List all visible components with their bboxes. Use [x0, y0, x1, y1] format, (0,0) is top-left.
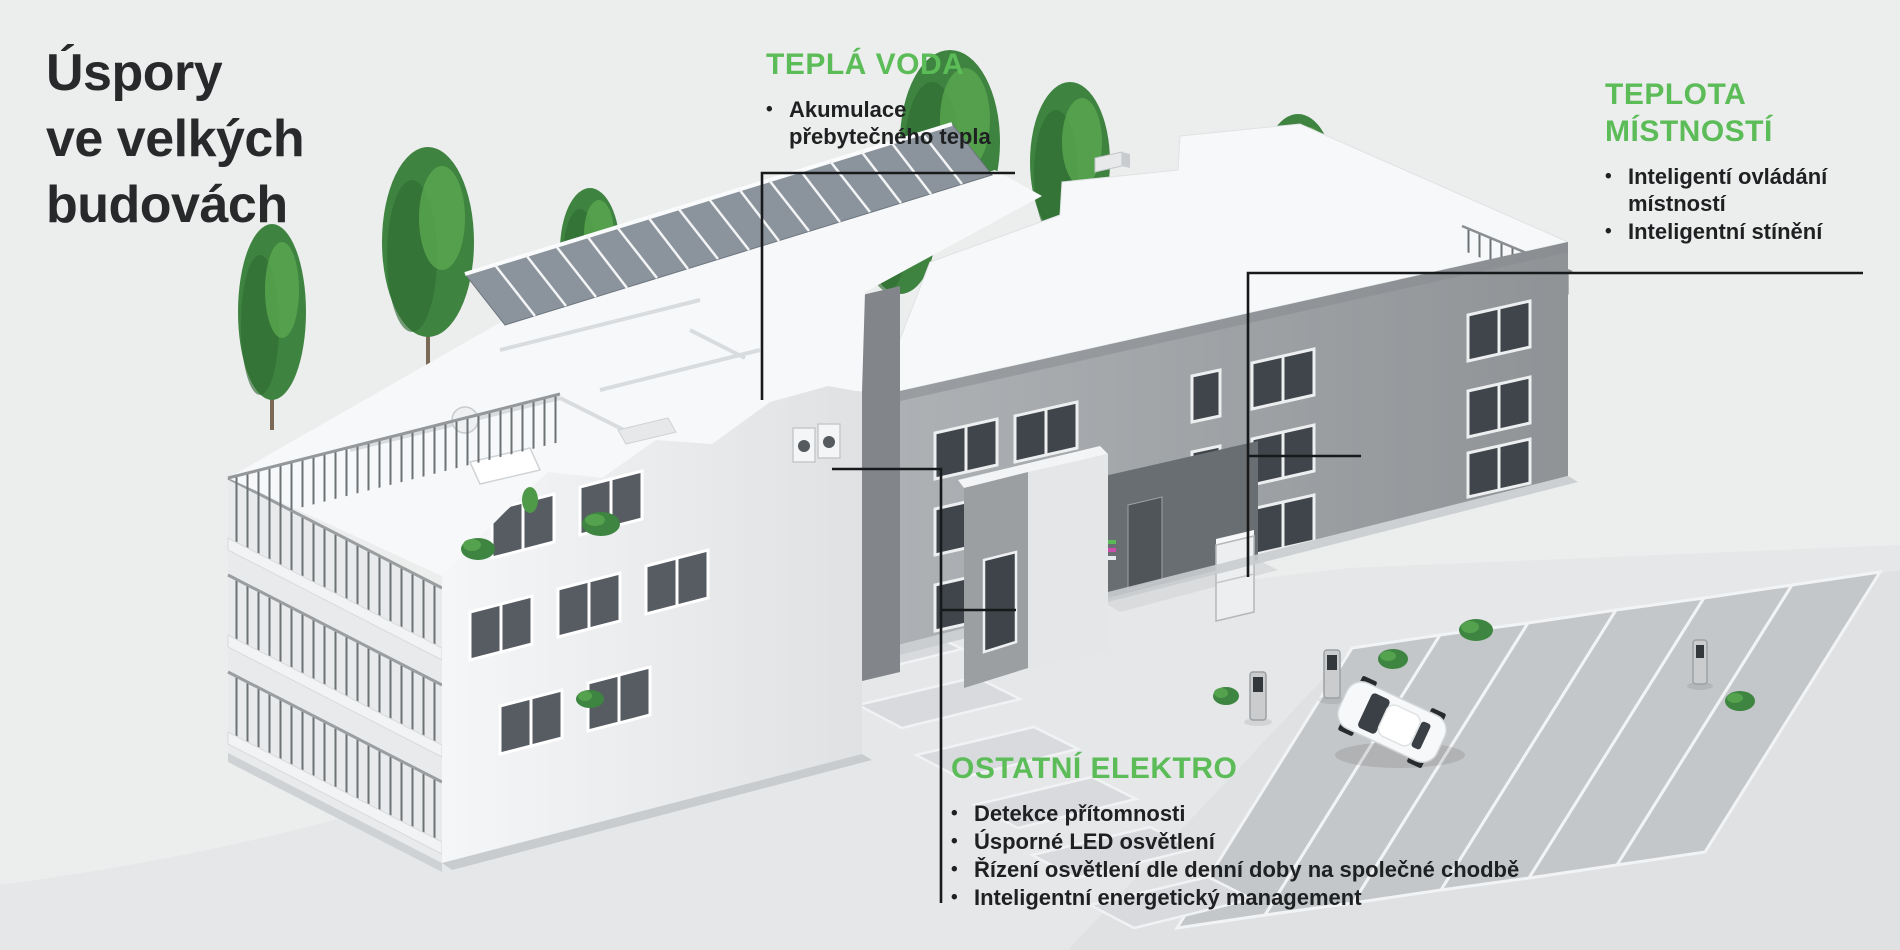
callout-teplota-mistnosti: TEPLOTA MÍSTNOSTÍ • Inteligentí ovládání…: [1605, 76, 1885, 246]
title-line: Úspory: [46, 40, 304, 106]
bullet-text: Detekce přítomnosti: [974, 800, 1186, 827]
tree: [238, 224, 306, 430]
bullet-list: • Detekce přítomnosti • Úsporné LED osvě…: [951, 800, 1671, 911]
bullet-dot: •: [951, 856, 974, 883]
bullet-list: • Akumulace přebytečného tepla: [766, 96, 1026, 150]
title-line: budovách: [46, 172, 304, 238]
bullet-dot: •: [951, 800, 974, 827]
callout-ostatni-elektro: OSTATNÍ ELEKTRO • Detekce přítomnosti • …: [951, 750, 1671, 912]
bullet-dot: •: [951, 828, 974, 855]
entrance-bay: [958, 446, 1108, 688]
bullet-dot: •: [951, 884, 974, 911]
bullet-dot: •: [1605, 218, 1628, 245]
callout-heading: TEPLOTA MÍSTNOSTÍ: [1605, 76, 1815, 150]
porch-door: [1128, 497, 1162, 590]
page-title: Úspory ve velkých budovách: [46, 40, 304, 238]
callout-tepla-voda: TEPLÁ VODA • Akumulace přebytečného tepl…: [766, 46, 1026, 151]
bullet-item: • Inteligentní energetický management: [951, 884, 1671, 911]
bullet-item: • Akumulace přebytečného tepla: [766, 96, 1026, 150]
callout-heading: TEPLÁ VODA: [766, 46, 1026, 83]
gap-shadow: [858, 286, 900, 682]
bullet-list: • Inteligentí ovládání místností • Intel…: [1605, 163, 1885, 245]
title-line: ve velkých: [46, 106, 304, 172]
entrance-door: [984, 552, 1016, 652]
bullet-item: • Inteligentní stínění: [1605, 218, 1885, 245]
bullet-text: Řízení osvětlení dle denní doby na spole…: [974, 856, 1519, 883]
bullet-item: • Inteligentí ovládání místností: [1605, 163, 1885, 217]
bullet-text: Akumulace přebytečného tepla: [789, 96, 1026, 150]
bullet-text: Inteligentní stínění: [1628, 218, 1885, 245]
callout-heading: OSTATNÍ ELEKTRO: [951, 750, 1671, 787]
bullet-text: Úsporné LED osvětlení: [974, 828, 1215, 855]
infographic-canvas: Úspory ve velkých budovách TEPLÁ VODA • …: [0, 0, 1900, 950]
bullet-dot: •: [766, 96, 789, 123]
tree: [382, 147, 474, 370]
terrace-plant: [522, 487, 538, 513]
bullet-text: Inteligentní energetický management: [974, 884, 1362, 911]
bullet-dot: •: [1605, 163, 1628, 190]
bullet-text: Inteligentí ovládání místností: [1628, 163, 1885, 217]
bullet-item: • Úsporné LED osvětlení: [951, 828, 1671, 855]
bullet-item: • Detekce přítomnosti: [951, 800, 1671, 827]
bullet-item: • Řízení osvětlení dle denní doby na spo…: [951, 856, 1671, 883]
